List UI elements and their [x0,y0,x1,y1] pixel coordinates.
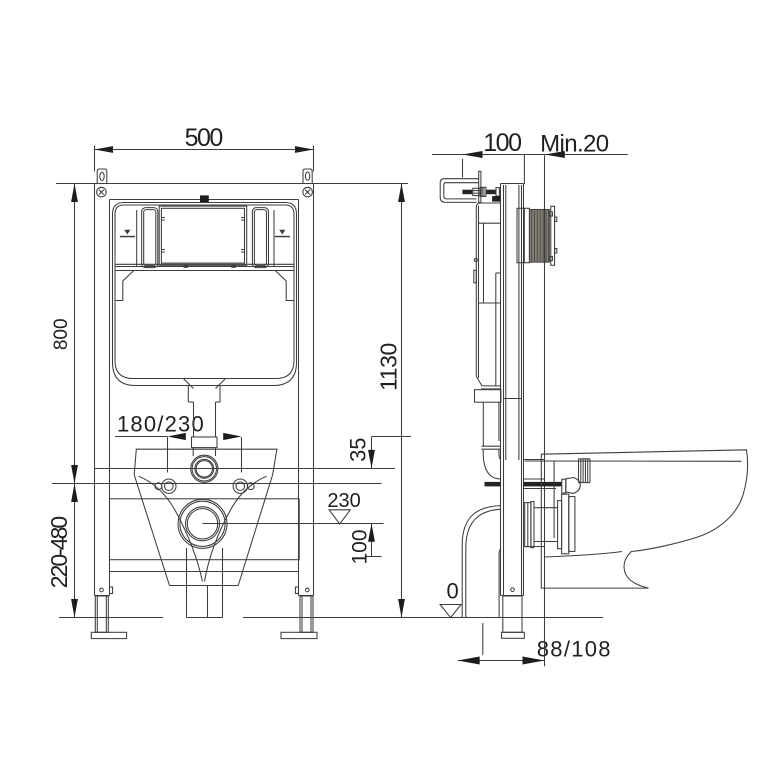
svg-text:100: 100 [483,129,521,157]
svg-text:230: 230 [327,490,360,512]
svg-text:1130: 1130 [376,343,402,391]
svg-text:0: 0 [446,579,458,604]
svg-text:88/108: 88/108 [537,636,612,661]
svg-text:500: 500 [185,124,223,152]
svg-text:Min.20: Min.20 [540,131,609,158]
svg-text:100: 100 [348,529,371,564]
svg-text:220-480: 220-480 [46,517,72,589]
svg-text:800: 800 [51,318,72,350]
svg-text:180/230: 180/230 [117,412,205,437]
svg-text:35: 35 [346,437,371,461]
